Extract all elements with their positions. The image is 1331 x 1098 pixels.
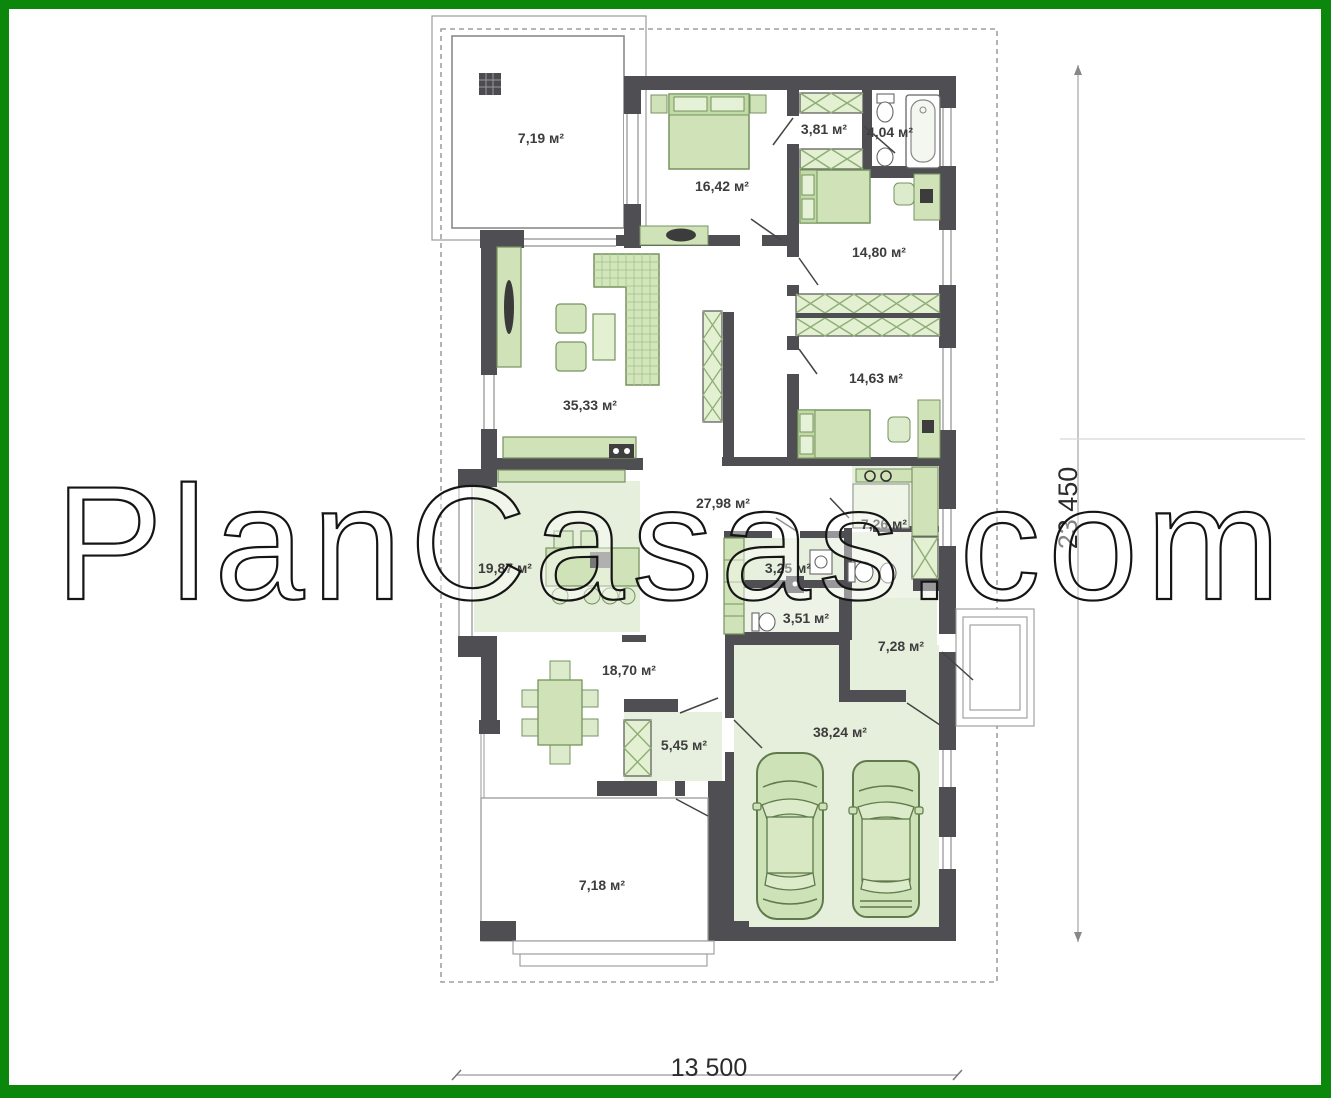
- svg-text:5,45 м²: 5,45 м²: [661, 737, 707, 753]
- svg-text:14,63 м²: 14,63 м²: [849, 370, 903, 386]
- svg-text:7,19 м²: 7,19 м²: [518, 130, 564, 146]
- svg-text:18,70 м²: 18,70 м²: [602, 662, 656, 678]
- svg-text:7,18 м²: 7,18 м²: [579, 877, 625, 893]
- svg-text:3,81 м²: 3,81 м²: [801, 121, 847, 137]
- svg-text:13 500: 13 500: [671, 1054, 747, 1082]
- svg-text:16,42 м²: 16,42 м²: [695, 178, 749, 194]
- svg-text:35,33 м²: 35,33 м²: [563, 397, 617, 413]
- svg-text:14,80 м²: 14,80 м²: [852, 244, 906, 260]
- svg-text:7,28 м²: 7,28 м²: [878, 638, 924, 654]
- svg-text:38,24 м²: 38,24 м²: [813, 724, 867, 740]
- svg-text:4,04 м²: 4,04 м²: [867, 124, 913, 140]
- svg-text:PlanCasas.com: PlanCasas.com: [55, 453, 1288, 634]
